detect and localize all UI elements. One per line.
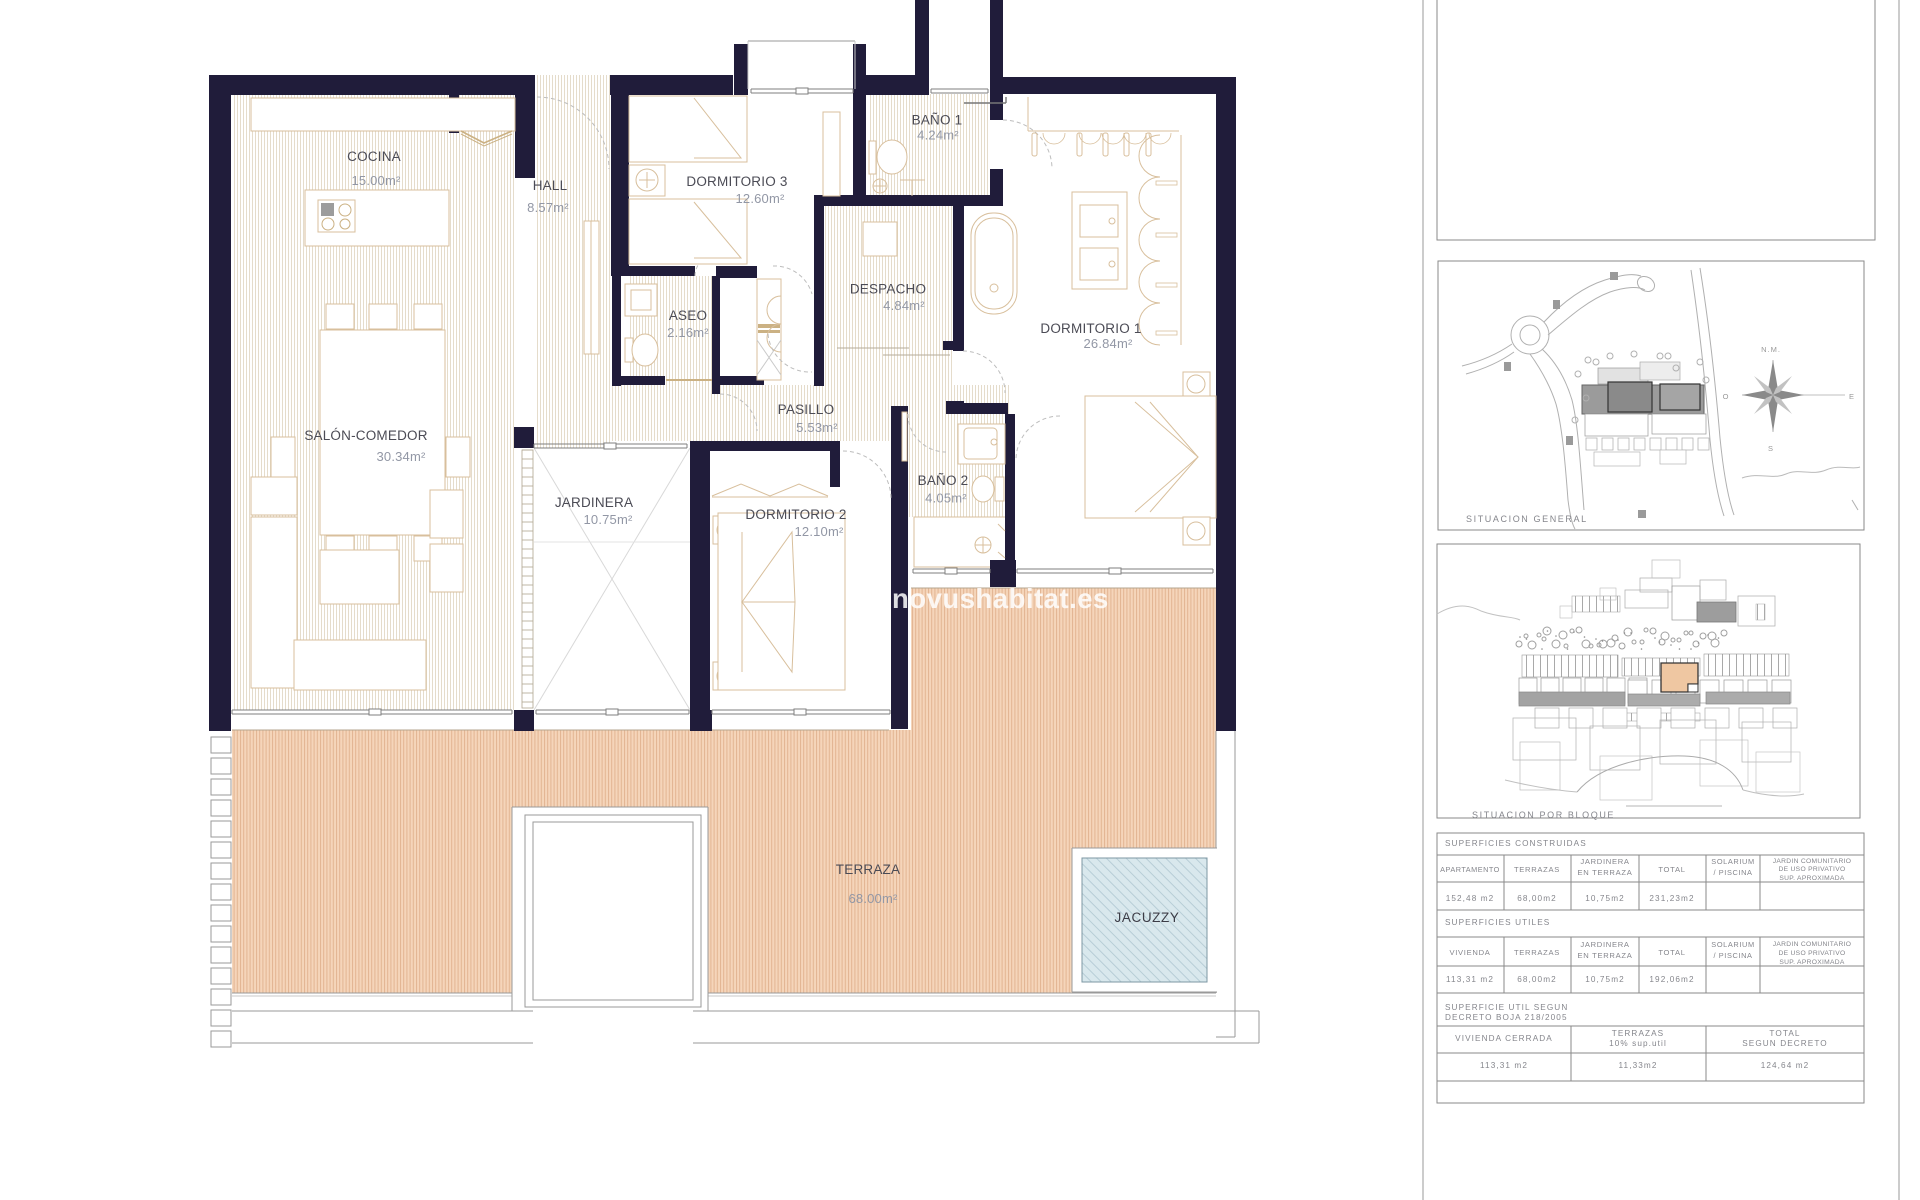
svg-text:SUP. APROXIMADA: SUP. APROXIMADA — [1779, 959, 1845, 966]
svg-text:SUPERFICIES UTILES: SUPERFICIES UTILES — [1445, 918, 1550, 927]
svg-text:2.16m²: 2.16m² — [667, 325, 709, 340]
svg-text:JARDINERA: JARDINERA — [555, 495, 633, 510]
svg-text:10,75m2: 10,75m2 — [1585, 894, 1625, 903]
svg-text:/ PISCINA: / PISCINA — [1713, 951, 1752, 960]
svg-text:113,31 m2: 113,31 m2 — [1446, 975, 1494, 984]
svg-text:4.05m²: 4.05m² — [925, 491, 967, 506]
svg-text:TERRAZAS: TERRAZAS — [1514, 948, 1560, 957]
svg-text:TOTAL: TOTAL — [1658, 865, 1685, 874]
svg-text:APARTAMENTO: APARTAMENTO — [1440, 865, 1500, 874]
svg-text:DE USO PRIVATIVO: DE USO PRIVATIVO — [1779, 950, 1846, 957]
svg-text:SOLARIUM: SOLARIUM — [1711, 940, 1754, 949]
svg-text:JACUZZY: JACUZZY — [1115, 910, 1180, 925]
svg-text:E: E — [1849, 392, 1855, 401]
svg-text:4.84m²: 4.84m² — [883, 298, 925, 313]
svg-text:10% sup.util: 10% sup.util — [1609, 1039, 1667, 1048]
svg-text:10.75m²: 10.75m² — [583, 512, 633, 527]
svg-text:SEGUN DECRETO: SEGUN DECRETO — [1742, 1039, 1828, 1048]
svg-text:O: O — [1723, 392, 1730, 401]
svg-text:TERRAZAS: TERRAZAS — [1612, 1029, 1664, 1038]
svg-text:12.10m²: 12.10m² — [794, 524, 844, 539]
svg-text:5.53m²: 5.53m² — [796, 420, 838, 435]
svg-text:BAÑO 1: BAÑO 1 — [912, 113, 963, 128]
svg-text:VIVIENDA: VIVIENDA — [1449, 948, 1490, 957]
svg-text:SOLARIUM: SOLARIUM — [1711, 857, 1754, 866]
svg-text:TOTAL: TOTAL — [1769, 1029, 1800, 1038]
svg-text:68.00m²: 68.00m² — [848, 891, 898, 906]
svg-text:DECRETO BOJA 218/2005: DECRETO BOJA 218/2005 — [1445, 1013, 1568, 1022]
svg-text:/ PISCINA: / PISCINA — [1713, 868, 1752, 877]
svg-text:JARDIN COMUNITARIO: JARDIN COMUNITARIO — [1773, 941, 1851, 948]
svg-text:15.00m²: 15.00m² — [351, 173, 401, 188]
svg-text:113,31 m2: 113,31 m2 — [1480, 1061, 1528, 1070]
svg-text:12.60m²: 12.60m² — [735, 191, 785, 206]
svg-text:EN TERRAZA: EN TERRAZA — [1578, 868, 1633, 877]
svg-text:DORMITORIO 3: DORMITORIO 3 — [686, 174, 787, 189]
svg-text:26.84m²: 26.84m² — [1083, 336, 1133, 351]
svg-text:152,48 m2: 152,48 m2 — [1446, 894, 1495, 903]
svg-text:SUPERFICIES CONSTRUIDAS: SUPERFICIES CONSTRUIDAS — [1445, 839, 1587, 848]
svg-text:HALL: HALL — [533, 178, 568, 193]
svg-text:TERRAZA: TERRAZA — [836, 862, 900, 877]
svg-text:4.24m²: 4.24m² — [917, 128, 959, 143]
svg-text:DORMITORIO 1: DORMITORIO 1 — [1040, 321, 1141, 336]
svg-text:EN TERRAZA: EN TERRAZA — [1578, 951, 1633, 960]
svg-text:PASILLO: PASILLO — [778, 402, 835, 417]
svg-text:68,00m2: 68,00m2 — [1517, 894, 1557, 903]
svg-text:JARDIN COMUNITARIO: JARDIN COMUNITARIO — [1773, 858, 1851, 865]
svg-text:SUP. APROXIMADA: SUP. APROXIMADA — [1779, 875, 1845, 882]
svg-text:TERRAZAS: TERRAZAS — [1514, 865, 1560, 874]
svg-text:SITUACION GENERAL: SITUACION GENERAL — [1466, 514, 1588, 524]
svg-text:TOTAL: TOTAL — [1658, 948, 1685, 957]
svg-text:11,33m2: 11,33m2 — [1619, 1061, 1658, 1070]
svg-text:SUPERFICIE UTIL SEGUN: SUPERFICIE UTIL SEGUN — [1445, 1003, 1568, 1012]
svg-text:S: S — [1768, 444, 1774, 453]
svg-text:192,06m2: 192,06m2 — [1649, 975, 1694, 984]
svg-text:VIVIENDA CERRADA: VIVIENDA CERRADA — [1455, 1034, 1553, 1043]
svg-text:DE USO PRIVATIVO: DE USO PRIVATIVO — [1779, 866, 1846, 873]
svg-text:DORMITORIO 2: DORMITORIO 2 — [745, 507, 846, 522]
svg-text:8.57m²: 8.57m² — [527, 200, 569, 215]
svg-text:231,23m2: 231,23m2 — [1649, 894, 1694, 903]
svg-text:124,64 m2: 124,64 m2 — [1761, 1061, 1810, 1070]
svg-text:JARDINERA: JARDINERA — [1580, 857, 1630, 866]
svg-text:DESPACHO: DESPACHO — [850, 282, 926, 297]
svg-text:BAÑO 2: BAÑO 2 — [918, 473, 969, 488]
svg-text:N.M.: N.M. — [1761, 345, 1781, 354]
svg-text:SITUACION POR BLOQUE: SITUACION POR BLOQUE — [1472, 810, 1615, 820]
svg-text:JARDINERA: JARDINERA — [1580, 940, 1630, 949]
svg-text:SALÓN-COMEDOR: SALÓN-COMEDOR — [304, 428, 427, 443]
svg-text:COCINA: COCINA — [347, 149, 401, 164]
svg-text:68,00m2: 68,00m2 — [1517, 975, 1557, 984]
svg-text:10,75m2: 10,75m2 — [1585, 975, 1625, 984]
svg-text:novushabitat.es: novushabitat.es — [892, 583, 1109, 614]
svg-text:30.34m²: 30.34m² — [376, 449, 426, 464]
svg-text:ASEO: ASEO — [669, 308, 707, 323]
